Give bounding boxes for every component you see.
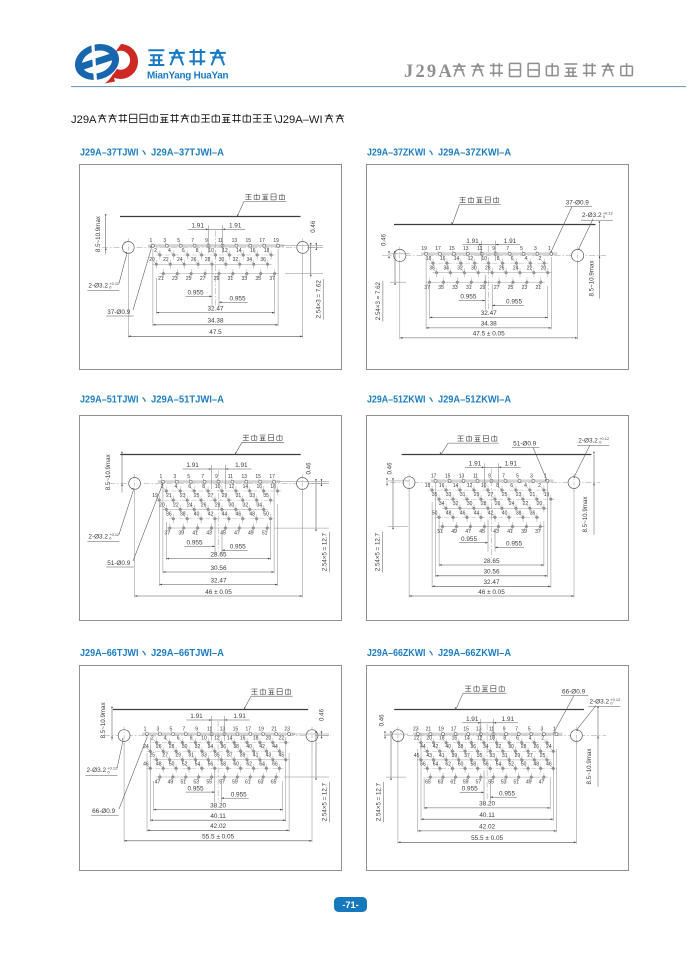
svg-text:1.91: 1.91 (191, 223, 204, 230)
svg-text:6: 6 (188, 484, 191, 490)
svg-text:66-Ø0.9: 66-Ø0.9 (92, 808, 116, 815)
svg-text:4: 4 (168, 248, 171, 254)
svg-text:45: 45 (220, 531, 226, 537)
svg-text:2.54×3 = 7.62: 2.54×3 = 7.62 (315, 280, 322, 319)
svg-text:7: 7 (182, 726, 185, 732)
svg-text:23: 23 (522, 285, 528, 291)
svg-text:0.46: 0.46 (379, 714, 386, 727)
svg-text:8: 8 (190, 736, 193, 742)
svg-text:31: 31 (466, 285, 472, 291)
svg-text:3: 3 (157, 726, 160, 732)
svg-text:-71-: -71- (342, 900, 358, 910)
svg-text:0.955: 0.955 (462, 786, 478, 793)
svg-text:0.955: 0.955 (187, 540, 203, 547)
svg-text:55.5 ± 0.05: 55.5 ± 0.05 (471, 835, 503, 842)
svg-text:J29A–66ZKWI: J29A–66ZKWI (367, 648, 426, 659)
svg-text:41: 41 (507, 529, 513, 535)
svg-text:1.91: 1.91 (466, 716, 479, 723)
svg-text:55: 55 (206, 780, 212, 786)
svg-text:3: 3 (173, 474, 176, 480)
svg-text:7: 7 (506, 246, 509, 252)
svg-text:21: 21 (536, 285, 542, 291)
svg-text:3: 3 (534, 246, 537, 252)
svg-text:32.47: 32.47 (481, 310, 497, 317)
svg-text:15: 15 (246, 238, 252, 244)
svg-text:2.54×5 = 12.7: 2.54×5 = 12.7 (375, 532, 382, 571)
svg-text:8: 8 (497, 256, 500, 262)
svg-text:0.955: 0.955 (231, 791, 247, 798)
svg-text:9: 9 (503, 727, 506, 733)
svg-text:47: 47 (234, 531, 240, 537)
svg-text:13: 13 (232, 238, 238, 244)
svg-text:8.5~10.9max: 8.5~10.9max (105, 453, 112, 490)
svg-text:17: 17 (431, 473, 437, 479)
svg-text:41: 41 (192, 531, 198, 537)
svg-text:J29A–51ZKWI–A: J29A–51ZKWI–A (438, 395, 511, 406)
svg-text:0.955: 0.955 (230, 544, 246, 551)
svg-text:8: 8 (196, 248, 199, 254)
svg-text:30.56: 30.56 (211, 565, 227, 572)
svg-text:17: 17 (259, 238, 265, 244)
svg-text:0.46: 0.46 (306, 462, 313, 475)
svg-text:32.47: 32.47 (484, 579, 500, 586)
svg-text:33: 33 (242, 276, 248, 282)
svg-text:17: 17 (246, 726, 252, 732)
svg-text:66-Ø0.9: 66-Ø0.9 (562, 689, 586, 696)
svg-text:25: 25 (508, 285, 514, 291)
svg-text:3: 3 (163, 238, 166, 244)
svg-text:51: 51 (181, 780, 187, 786)
svg-text:2: 2 (541, 736, 544, 742)
svg-text:53: 53 (501, 780, 507, 786)
svg-text:4: 4 (175, 484, 178, 490)
svg-text:8.5~10.9max: 8.5~10.9max (589, 260, 596, 297)
svg-text:9: 9 (205, 238, 208, 244)
svg-text:63: 63 (258, 780, 264, 786)
svg-text:2-Ø3.2: 2-Ø3.2 (578, 438, 598, 445)
svg-text:37: 37 (535, 529, 541, 535)
svg-text:1.91: 1.91 (235, 462, 248, 469)
svg-text:42.02: 42.02 (210, 823, 226, 830)
svg-text:61: 61 (245, 780, 251, 786)
svg-text:27: 27 (494, 285, 500, 291)
svg-text:5: 5 (187, 474, 190, 480)
svg-text:J29A–37TJWI–A: J29A–37TJWI–A (151, 148, 224, 159)
svg-text:23: 23 (172, 276, 178, 282)
svg-text:65: 65 (271, 780, 277, 786)
svg-text:32.47: 32.47 (211, 577, 227, 584)
svg-text:23: 23 (284, 726, 290, 732)
svg-text:21: 21 (426, 727, 432, 733)
svg-text:29: 29 (214, 276, 220, 282)
svg-text:J29A–66TJWI: J29A–66TJWI (80, 648, 139, 659)
svg-text:2-Ø3.2: 2-Ø3.2 (582, 212, 602, 219)
svg-text:19: 19 (273, 238, 279, 244)
svg-text:5: 5 (528, 727, 531, 733)
svg-text:2-Ø3.2: 2-Ø3.2 (88, 534, 108, 541)
svg-text:8.5~10.9max: 8.5~10.9max (582, 496, 589, 533)
svg-text:2-Ø3.2: 2-Ø3.2 (590, 698, 610, 705)
svg-text:0.46: 0.46 (310, 220, 317, 233)
svg-text:51-Ø0.9: 51-Ø0.9 (513, 441, 537, 448)
svg-text:1.91: 1.91 (233, 713, 246, 720)
svg-text:38.20: 38.20 (210, 802, 226, 809)
svg-text:8.5~10.9max: 8.5~10.9max (100, 702, 107, 739)
svg-text:46 ± 0.05: 46 ± 0.05 (478, 589, 505, 596)
svg-text:2: 2 (154, 248, 157, 254)
svg-text:42.02: 42.02 (479, 824, 495, 831)
svg-text:49: 49 (168, 780, 174, 786)
svg-text:5: 5 (516, 473, 519, 479)
svg-text:0.955: 0.955 (499, 790, 515, 797)
svg-text:63: 63 (438, 780, 444, 786)
svg-text:1.91: 1.91 (466, 238, 479, 245)
svg-text:0.955: 0.955 (506, 541, 522, 548)
svg-text:J29A: J29A (404, 62, 454, 82)
svg-text:45: 45 (479, 529, 485, 535)
svg-text:47.5 ± 0.05: 47.5 ± 0.05 (473, 331, 505, 338)
svg-text:51: 51 (513, 780, 519, 786)
svg-text:5: 5 (177, 238, 180, 244)
svg-text:0.46: 0.46 (319, 708, 326, 721)
svg-text:40.11: 40.11 (479, 812, 495, 819)
svg-text:7: 7 (515, 727, 518, 733)
svg-text:1.91: 1.91 (229, 223, 242, 230)
svg-text:13: 13 (242, 474, 248, 480)
svg-text:J29A–51TJWI: J29A–51TJWI (80, 395, 139, 406)
svg-text:37: 37 (165, 531, 171, 537)
svg-text:61: 61 (450, 780, 456, 786)
svg-text:30.56: 30.56 (484, 569, 500, 576)
svg-text:2-Ø3.2: 2-Ø3.2 (87, 767, 107, 774)
svg-text:4: 4 (525, 256, 528, 262)
svg-text:8.5~10.9max: 8.5~10.9max (95, 215, 102, 252)
svg-text:5: 5 (170, 726, 173, 732)
svg-text:21: 21 (158, 276, 164, 282)
svg-text:59: 59 (232, 780, 238, 786)
svg-text:2: 2 (151, 736, 154, 742)
svg-text:13: 13 (463, 246, 469, 252)
svg-text:49: 49 (451, 529, 457, 535)
svg-text:33: 33 (452, 285, 458, 291)
svg-text:23: 23 (413, 727, 419, 733)
svg-text:4: 4 (529, 736, 532, 742)
svg-text:15: 15 (449, 246, 455, 252)
svg-text:9: 9 (195, 726, 198, 732)
svg-text:4: 4 (524, 483, 527, 489)
svg-text:57: 57 (219, 780, 225, 786)
svg-text:1.91: 1.91 (504, 461, 517, 468)
svg-text:47.5: 47.5 (209, 329, 222, 336)
svg-text:2.54×5 = 12.7: 2.54×5 = 12.7 (322, 532, 329, 571)
svg-text:35: 35 (438, 285, 444, 291)
svg-text:0.955: 0.955 (460, 294, 476, 301)
svg-text:8: 8 (202, 484, 205, 490)
svg-text:51-Ø0.9: 51-Ø0.9 (107, 560, 131, 567)
svg-text:31: 31 (228, 276, 234, 282)
svg-text:21: 21 (271, 726, 277, 732)
svg-text:3: 3 (530, 473, 533, 479)
svg-text:1: 1 (548, 246, 551, 252)
svg-text:47: 47 (539, 780, 545, 786)
svg-text:MianYang HuaYan: MianYang HuaYan (147, 71, 229, 82)
svg-text:4: 4 (164, 736, 167, 742)
svg-text:15: 15 (233, 726, 239, 732)
svg-text:9: 9 (488, 473, 491, 479)
svg-text:1: 1 (160, 474, 163, 480)
svg-text:6: 6 (182, 248, 185, 254)
svg-text:43: 43 (493, 529, 499, 535)
svg-text:7: 7 (191, 238, 194, 244)
svg-text:0.955: 0.955 (188, 785, 204, 792)
svg-text:J29A–51ZKWI: J29A–51ZKWI (367, 395, 426, 406)
svg-text:\J29A–WI: \J29A–WI (274, 114, 323, 126)
svg-text:34.38: 34.38 (481, 321, 497, 328)
svg-text:19: 19 (438, 727, 444, 733)
svg-text:38.20: 38.20 (479, 801, 495, 808)
svg-text:27: 27 (200, 276, 206, 282)
svg-text:35: 35 (255, 276, 261, 282)
svg-text:15: 15 (255, 474, 261, 480)
svg-text:47: 47 (155, 780, 161, 786)
svg-text:32.47: 32.47 (208, 305, 224, 312)
svg-text:0.46: 0.46 (386, 462, 393, 475)
svg-text:0.955: 0.955 (461, 536, 477, 543)
svg-text:6: 6 (177, 736, 180, 742)
svg-text:51: 51 (262, 531, 268, 537)
svg-text:43: 43 (206, 531, 212, 537)
svg-text:37: 37 (269, 276, 275, 282)
svg-text:46 ± 0.05: 46 ± 0.05 (205, 589, 232, 596)
svg-text:28.65: 28.65 (211, 551, 227, 558)
svg-text:1.91: 1.91 (186, 462, 199, 469)
svg-text:17: 17 (451, 727, 457, 733)
svg-text:7: 7 (502, 473, 505, 479)
svg-text:2.54×5 = 12.7: 2.54×5 = 12.7 (322, 782, 329, 821)
svg-text:9: 9 (215, 474, 218, 480)
svg-text:1.91: 1.91 (502, 716, 515, 723)
svg-text:49: 49 (526, 780, 532, 786)
svg-text:28.65: 28.65 (484, 558, 500, 565)
svg-text:47: 47 (465, 529, 471, 535)
svg-text:49: 49 (248, 531, 254, 537)
svg-text:17: 17 (435, 246, 441, 252)
svg-text:0.955: 0.955 (230, 296, 246, 303)
svg-text:2-Ø3.2: 2-Ø3.2 (88, 283, 108, 290)
svg-text:1.91: 1.91 (190, 713, 203, 720)
svg-text:2.54×3 = 7.62: 2.54×3 = 7.62 (375, 281, 382, 320)
svg-text:2: 2 (539, 256, 542, 262)
svg-text:8.5~10.9max: 8.5~10.9max (586, 748, 593, 785)
svg-text:6: 6 (511, 256, 514, 262)
svg-text:1: 1 (150, 238, 153, 244)
svg-text:1.91: 1.91 (504, 238, 517, 245)
svg-text:29: 29 (480, 285, 486, 291)
svg-text:11: 11 (228, 474, 233, 480)
svg-text:6: 6 (516, 736, 519, 742)
svg-text:8: 8 (503, 736, 506, 742)
svg-text:11: 11 (473, 473, 478, 479)
svg-text:0.955: 0.955 (188, 290, 204, 297)
svg-text:7: 7 (201, 474, 204, 480)
svg-text:40.11: 40.11 (210, 813, 226, 820)
svg-text:51: 51 (437, 529, 443, 535)
svg-text:J29A–37ZKWI: J29A–37ZKWI (367, 148, 426, 159)
svg-text:5: 5 (520, 246, 523, 252)
svg-text:13: 13 (459, 473, 465, 479)
svg-text:55: 55 (488, 780, 494, 786)
svg-text:37: 37 (424, 285, 430, 291)
svg-text:34.38: 34.38 (208, 318, 224, 325)
svg-text:15: 15 (463, 727, 469, 733)
svg-text:9: 9 (492, 246, 495, 252)
svg-text:J29A: J29A (71, 114, 97, 126)
svg-text:1: 1 (144, 726, 147, 732)
svg-text:3: 3 (541, 727, 544, 733)
svg-text:37-Ø0.9: 37-Ø0.9 (107, 309, 131, 316)
svg-text:6: 6 (510, 483, 513, 489)
svg-text:37-Ø0.9: 37-Ø0.9 (566, 200, 590, 207)
svg-text:17: 17 (269, 474, 275, 480)
svg-text:65: 65 (425, 780, 431, 786)
svg-text:39: 39 (521, 529, 527, 535)
svg-text:15: 15 (445, 473, 451, 479)
svg-text:25: 25 (186, 276, 192, 282)
svg-text:J29A–66TJWI–A: J29A–66TJWI–A (151, 648, 224, 659)
svg-text:19: 19 (258, 726, 264, 732)
svg-text:0.955: 0.955 (506, 299, 522, 306)
svg-text:J29A–66ZKWI–A: J29A–66ZKWI–A (438, 648, 511, 659)
svg-text:2.54×5 = 12.7: 2.54×5 = 12.7 (376, 782, 383, 821)
svg-text:0.46: 0.46 (381, 233, 388, 246)
svg-text:19: 19 (421, 246, 427, 252)
svg-text:8: 8 (496, 483, 499, 489)
svg-text:55.5 ± 0.05: 55.5 ± 0.05 (202, 834, 234, 841)
svg-text:1.91: 1.91 (469, 461, 482, 468)
svg-text:39: 39 (178, 531, 184, 537)
svg-text:J29A–37ZKWI–A: J29A–37ZKWI–A (438, 148, 511, 159)
svg-text:J29A–51TJWI–A: J29A–51TJWI–A (151, 395, 224, 406)
svg-text:J29A–37TJWI: J29A–37TJWI (80, 148, 139, 159)
svg-text:2: 2 (538, 483, 541, 489)
